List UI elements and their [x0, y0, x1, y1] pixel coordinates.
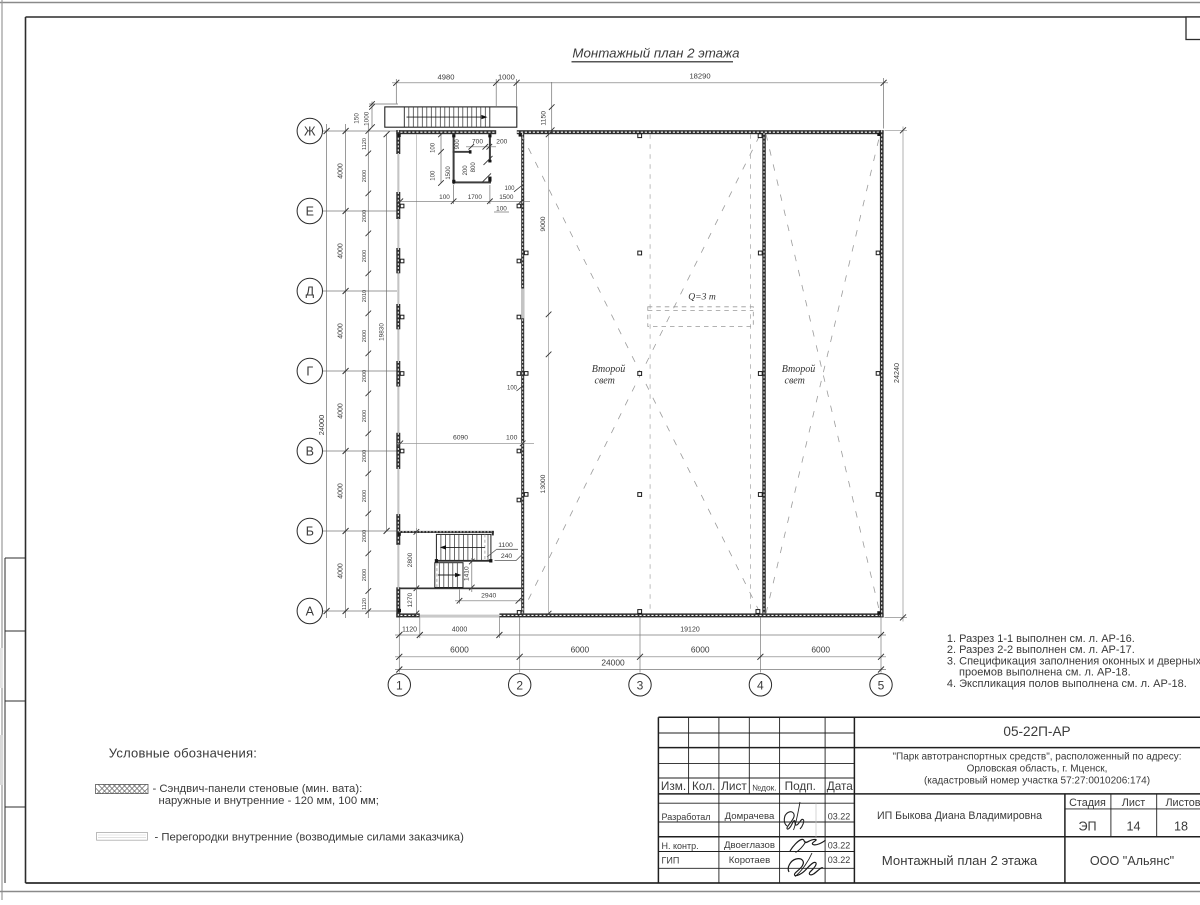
svg-text:свет: свет	[595, 376, 615, 387]
svg-text:1270: 1270	[407, 593, 414, 608]
svg-text:900: 900	[455, 139, 461, 150]
svg-text:19120: 19120	[680, 626, 700, 633]
svg-text:Второй: Второй	[782, 364, 815, 375]
svg-text:4: 4	[757, 678, 764, 692]
svg-text:Д: Д	[306, 285, 315, 299]
svg-text:Ж: Ж	[304, 125, 316, 139]
svg-text:4980: 4980	[438, 73, 455, 82]
svg-text:6000: 6000	[450, 645, 469, 655]
svg-text:2000: 2000	[362, 410, 368, 422]
svg-text:1410: 1410	[463, 566, 470, 581]
svg-text:1500: 1500	[446, 166, 452, 180]
svg-text:1120: 1120	[402, 626, 417, 633]
svg-text:4000: 4000	[452, 626, 468, 633]
svg-text:03.22: 03.22	[828, 855, 851, 865]
svg-text:Кол.: Кол.	[692, 779, 715, 793]
svg-text:100: 100	[431, 142, 437, 153]
svg-text:05-22П-АР: 05-22П-АР	[1003, 724, 1070, 739]
svg-text:4. Экспликация полов выполнена: 4. Экспликация полов выполнена см. л. АР…	[947, 678, 1187, 690]
svg-text:А: А	[306, 605, 315, 619]
svg-text:2000: 2000	[362, 210, 368, 222]
svg-text:Подп.: Подп.	[785, 779, 816, 793]
svg-text:2000: 2000	[362, 530, 368, 542]
svg-text:2000: 2000	[362, 370, 368, 382]
svg-text:4000: 4000	[337, 403, 344, 419]
svg-text:Листов: Листов	[1165, 797, 1200, 809]
svg-text:100: 100	[431, 170, 437, 181]
svg-text:6090: 6090	[453, 435, 468, 442]
svg-text:1: 1	[396, 678, 403, 692]
svg-text:"Парк автотранспортных средств: "Парк автотранспортных средств", располо…	[892, 751, 1181, 762]
svg-text:200: 200	[496, 138, 507, 145]
svg-text:03.22: 03.22	[828, 841, 851, 851]
svg-text:4000: 4000	[337, 323, 344, 339]
svg-text:1000: 1000	[498, 73, 515, 82]
svg-text:6000: 6000	[571, 645, 590, 655]
svg-text:В: В	[306, 445, 314, 459]
svg-text:3. Спецификация заполнения око: 3. Спецификация заполнения оконных и две…	[947, 655, 1200, 667]
svg-text:2010: 2010	[362, 290, 368, 302]
svg-text:100: 100	[496, 205, 507, 212]
svg-text:Монтажный план 2 этажа: Монтажный план 2 этажа	[882, 853, 1038, 868]
svg-text:2: 2	[516, 678, 523, 692]
svg-text:Лист: Лист	[721, 779, 747, 793]
svg-text:Лист: Лист	[1122, 797, 1146, 809]
svg-text:2000: 2000	[362, 330, 368, 342]
svg-text:Коротаев: Коротаев	[729, 855, 770, 866]
svg-text:Стадия: Стадия	[1069, 797, 1106, 809]
svg-text:4000: 4000	[337, 243, 344, 259]
svg-text:Домрачева: Домрачева	[725, 811, 775, 822]
svg-text:2000: 2000	[362, 170, 368, 182]
svg-text:- Перегородки внутренние (возв: - Перегородки внутренние (возводимые сил…	[155, 831, 465, 843]
svg-text:свет: свет	[785, 376, 805, 387]
svg-text:наружные и внутренние - 120 мм: наружные и внутренние - 120 мм, 100 мм;	[159, 795, 379, 807]
svg-text:Дата: Дата	[827, 779, 854, 793]
svg-text:240: 240	[501, 553, 513, 560]
svg-text:5: 5	[878, 678, 885, 692]
svg-text:3: 3	[637, 678, 644, 692]
svg-text:100: 100	[506, 435, 518, 442]
svg-text:2000: 2000	[362, 490, 368, 502]
svg-text:Изм.: Изм.	[661, 779, 686, 793]
svg-text:100: 100	[439, 194, 450, 201]
svg-text:1700: 1700	[468, 194, 483, 201]
svg-text:Q=3 m: Q=3 m	[688, 292, 716, 303]
svg-text:2000: 2000	[362, 450, 368, 462]
svg-text:Условные обозначения:: Условные обозначения:	[109, 746, 257, 761]
svg-text:4000: 4000	[337, 163, 344, 179]
svg-text:24240: 24240	[892, 363, 901, 383]
svg-text:2800: 2800	[407, 552, 414, 567]
svg-text:14: 14	[1126, 820, 1140, 834]
svg-text:проемов выполнена см. л. АР-18: проемов выполнена см. л. АР-18.	[959, 667, 1131, 679]
svg-text:№док.: №док.	[752, 782, 777, 792]
svg-text:100: 100	[507, 385, 518, 391]
svg-text:24000: 24000	[601, 657, 625, 667]
svg-text:19830: 19830	[379, 323, 386, 341]
svg-text:ЭП: ЭП	[1078, 820, 1096, 834]
svg-text:100: 100	[504, 186, 515, 192]
svg-text:Второй: Второй	[592, 364, 625, 375]
svg-text:1120: 1120	[362, 598, 368, 610]
svg-text:ИП Быкова Диана Владимировна: ИП Быкова Диана Владимировна	[877, 810, 1042, 822]
svg-text:2. Разрез 2-2 выполнен см. л.: 2. Разрез 2-2 выполнен см. л. АР-17.	[947, 644, 1135, 656]
svg-text:2000: 2000	[362, 569, 368, 581]
svg-text:18290: 18290	[689, 72, 710, 81]
svg-text:Орловская область, г. Мценск,: Орловская область, г. Мценск,	[967, 762, 1108, 774]
svg-text:(кадастровый номер участка 57:: (кадастровый номер участка 57:27:0010206…	[924, 775, 1150, 786]
svg-text:6000: 6000	[691, 645, 710, 655]
svg-text:03.22: 03.22	[828, 811, 851, 821]
svg-text:1. Разрез 1-1 выполнен см. л.: 1. Разрез 1-1 выполнен см. л. АР-16.	[947, 633, 1135, 645]
svg-text:1150: 1150	[540, 111, 547, 126]
svg-text:9000: 9000	[540, 216, 547, 231]
svg-text:4000: 4000	[337, 563, 344, 579]
svg-text:24000: 24000	[317, 415, 326, 436]
svg-text:Н. контр.: Н. контр.	[662, 841, 699, 851]
svg-text:- Сэндвич-панели стеновые (мин: - Сэндвич-панели стеновые (мин. вата):	[153, 783, 363, 795]
svg-text:18: 18	[1174, 820, 1188, 834]
svg-text:1120: 1120	[362, 138, 368, 150]
svg-text:Е: Е	[306, 205, 314, 219]
svg-text:Г: Г	[306, 365, 313, 379]
svg-text:Двоеглазов: Двоеглазов	[724, 840, 775, 851]
svg-text:800: 800	[471, 162, 477, 173]
svg-text:150: 150	[353, 113, 360, 124]
svg-text:2000: 2000	[362, 250, 368, 262]
svg-text:1500: 1500	[499, 194, 514, 201]
svg-text:Б: Б	[306, 525, 314, 539]
svg-text:6000: 6000	[811, 645, 830, 655]
svg-text:700: 700	[472, 138, 483, 145]
svg-text:ГИП: ГИП	[662, 855, 680, 865]
svg-text:2940: 2940	[481, 593, 496, 600]
svg-text:1100: 1100	[498, 542, 513, 549]
svg-text:200: 200	[463, 165, 469, 176]
svg-text:13000: 13000	[540, 474, 547, 493]
svg-text:ООО "Альянс": ООО "Альянс"	[1090, 854, 1174, 868]
svg-text:1000: 1000	[364, 111, 371, 126]
svg-text:4000: 4000	[337, 483, 344, 499]
svg-text:Монтажный план 2 этажа: Монтажный план 2 этажа	[572, 46, 739, 61]
svg-text:Разработал: Разработал	[662, 812, 711, 822]
